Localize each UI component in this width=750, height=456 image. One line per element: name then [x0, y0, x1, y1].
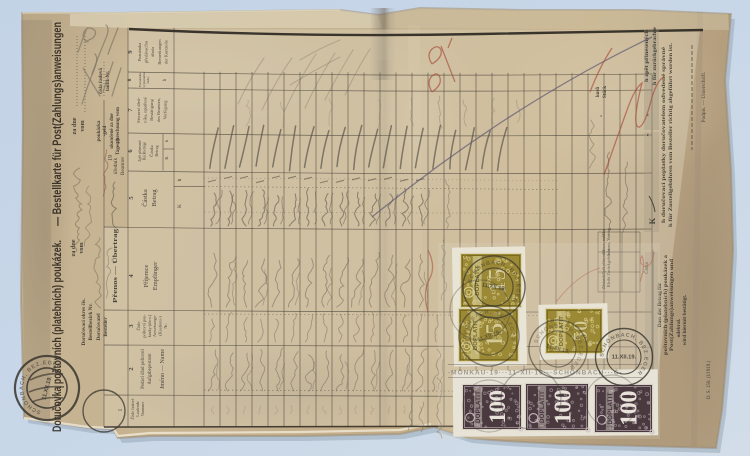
svg-text:DOPLATIT: DOPLATIT [607, 392, 614, 424]
svg-text:Bestätigung: Bestätigung [149, 99, 154, 121]
svg-text:kázky (úhrn.): kázky (úhrn.) [147, 314, 152, 337]
svg-text:h doručovací poplatky doručova: h doručovací poplatky doručovatelem odve… [661, 46, 667, 223]
svg-text:vom: vom [79, 119, 86, 131]
svg-text:„: „ [642, 133, 650, 136]
svg-text:Nummer: Nummer [140, 401, 145, 416]
svg-text:Doručovatel: Doručovatel [96, 313, 102, 341]
svg-text:— Bestellkarte für Post(Zahlun: — Bestellkarte für Post(Zahlungs)anweisu… [50, 22, 64, 226]
svg-text:Rückbeträge: Rückbeträge [143, 142, 147, 161]
svg-text:úřadu: úřadu [150, 46, 155, 57]
svg-text:Anweisungs-: Anweisungs- [152, 314, 157, 337]
svg-text:Bemerkungen: Bemerkungen [157, 39, 162, 65]
svg-text:wird hiermit bestätigt.: wird hiermit bestätigt. [682, 294, 688, 345]
svg-text:DOPLATIT: DOPLATIT [539, 391, 546, 423]
svg-text:der Kontrolle: der Kontrolle [163, 40, 168, 64]
svg-text:Poznámka: Poznámka [137, 43, 142, 62]
svg-text:Betrag: Betrag [154, 145, 159, 157]
svg-text:h für Zustellgebühren vom Best: h für Zustellgebühren vom Besteller rich… [668, 42, 674, 227]
svg-text:K: K [647, 217, 657, 224]
svg-text:Bestellbezirk Nr.: Bestellbezirk Nr. [88, 303, 94, 341]
svg-text:Aufgabepostamt: Aufgabepostamt [148, 353, 153, 385]
svg-text:Zpět přinesené: Zpět přinesené [138, 140, 142, 162]
svg-text:Betrag: Betrag [151, 189, 158, 207]
svg-text:Podpis. — Unterschrift.: Podpis. — Unterschrift. [700, 72, 707, 123]
svg-text:11.XII.19.: 11.XII.19. [612, 355, 637, 361]
svg-text:Přenos — Übertrag: Přenos — Übertrag [112, 228, 119, 303]
svg-text:· 19: · 19 [116, 138, 122, 148]
svg-text:ukončené za dne: ukončené za dne [110, 113, 115, 149]
svg-text:-geld: -geld [103, 126, 108, 137]
svg-text:100: 100 [485, 391, 510, 424]
svg-text:h: h [177, 178, 183, 181]
svg-text:poukázka: poukázka [97, 120, 102, 141]
svg-text:Podací úřad poštovní: Podací úřad poštovní [141, 349, 146, 389]
svg-text:předávacího: předávacího [144, 40, 149, 63]
svg-text:·MÖNKAU·19···11·XII·19···SCHÖN: ·MÖNKAU·19···11·XII·19···SCHÖNBACH···Č· [448, 368, 623, 377]
svg-text:poštovní pou-: poštovní pou- [141, 314, 146, 338]
svg-text:100: 100 [550, 389, 576, 424]
svg-text:Besteller: Besteller [103, 317, 109, 337]
svg-text:19: 19 [108, 155, 114, 161]
svg-text:(Kautions-): (Kautions-) [158, 316, 163, 336]
svg-text:Nr.: Nr. [163, 323, 168, 328]
svg-text:za dne: za dne [71, 117, 78, 134]
svg-text:poštovních (platebních) poukáz: poštovních (platebních) poukázek a [662, 255, 669, 355]
svg-text:Příjemce: Příjemce [143, 264, 150, 287]
svg-text:1: 1 [118, 408, 124, 411]
svg-text:Doručovka poštovních (platební: Doručovka poštovních (platebních) poukáz… [50, 240, 64, 432]
svg-text:kusů: kusů [595, 87, 601, 98]
svg-text:čárky: čárky [146, 76, 150, 84]
svg-text:h zpět přinesených: h zpět přinesených [645, 30, 650, 82]
svg-text:DOPLATIT: DOPLATIT [475, 391, 482, 423]
svg-text:„: „ [597, 114, 603, 117]
svg-text:Beamter: Beamter [120, 157, 126, 175]
svg-text:vom: vom [78, 241, 85, 253]
svg-text:8: 8 [127, 78, 133, 81]
svg-text:D. S. 150. (I/1919.): D. S. 150. (I/1919.) [707, 361, 712, 400]
svg-text:Částka: Částka [141, 189, 149, 207]
svg-text:Doručovací okres čís.: Doručovací okres čís. [81, 298, 87, 346]
svg-text:Post(Zahlungs)anweisungen und: Post(Zahlungs)anweisungen und [668, 259, 675, 351]
svg-text:2: 2 [128, 367, 135, 370]
svg-text:Empfänger: Empfänger [152, 261, 159, 290]
svg-text:Jméno — Name: Jméno — Name [159, 349, 166, 389]
svg-text:Verfügung: Verfügung [162, 100, 167, 120]
svg-text:Stvrzení úřed-: Stvrzení úřed- [136, 97, 141, 123]
svg-text:h für zurückgebrachte: h für zurückgebrachte [653, 27, 658, 85]
svg-text:Číslo: Číslo [136, 322, 141, 331]
svg-text:Stück: Stück [603, 86, 608, 98]
svg-text:K: K [177, 204, 183, 208]
